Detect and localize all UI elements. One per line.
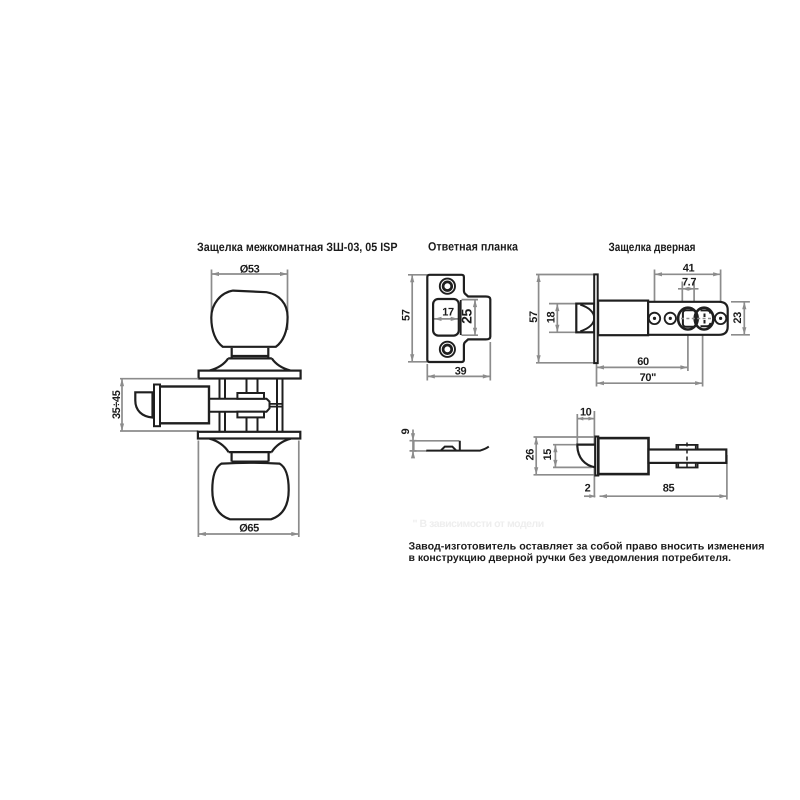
svg-text:Защелка дверная: Защелка дверная xyxy=(609,240,696,254)
svg-text:39: 39 xyxy=(455,366,467,378)
svg-text:70": 70" xyxy=(640,372,656,384)
svg-text:в конструкцию дверной ручки бе: в конструкцию дверной ручки без уведомле… xyxy=(409,552,732,564)
svg-text:60: 60 xyxy=(637,356,649,368)
svg-text:Ответная планка: Ответная планка xyxy=(428,240,518,254)
svg-text:7.7: 7.7 xyxy=(682,277,696,289)
svg-text:10: 10 xyxy=(580,407,592,419)
svg-text:Ø53: Ø53 xyxy=(240,263,260,275)
svg-text:85: 85 xyxy=(663,483,675,495)
svg-text:Защелка межкомнатная ЗШ-03, 05: Защелка межкомнатная ЗШ-03, 05 ISP xyxy=(197,240,398,254)
svg-text:" В зависимости от модели: " В зависимости от модели xyxy=(413,518,544,530)
svg-text:57: 57 xyxy=(400,309,412,321)
svg-text:Ø65: Ø65 xyxy=(239,522,259,534)
svg-text:35÷45: 35÷45 xyxy=(111,390,123,419)
svg-text:2: 2 xyxy=(585,483,591,495)
svg-text:26: 26 xyxy=(525,449,537,461)
svg-text:41: 41 xyxy=(683,262,695,274)
svg-text:15: 15 xyxy=(542,449,554,461)
svg-text:Завод-изготовитель оставляет з: Завод-изготовитель оставляет за собой пр… xyxy=(409,541,765,553)
svg-text:9: 9 xyxy=(400,429,412,435)
svg-text:17: 17 xyxy=(442,307,454,319)
svg-text:57: 57 xyxy=(528,311,540,323)
svg-text:23: 23 xyxy=(732,312,744,324)
svg-text:18: 18 xyxy=(545,312,557,324)
